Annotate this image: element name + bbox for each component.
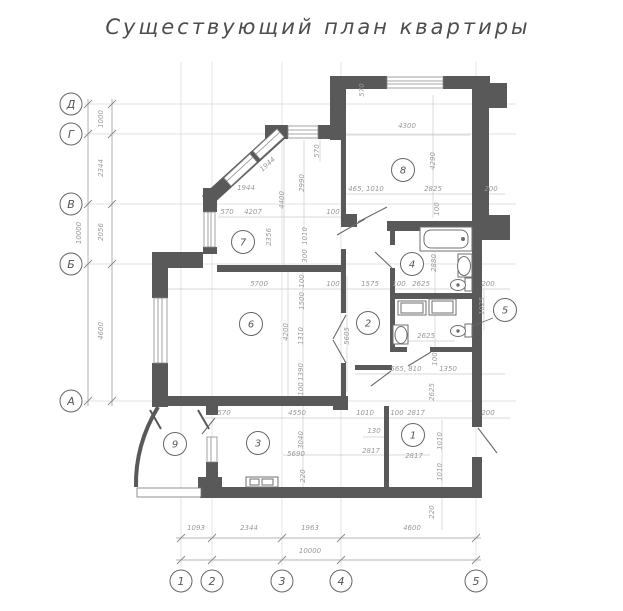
dimension-label: 100 — [431, 352, 439, 366]
door-wc — [408, 352, 431, 366]
dimension-label: 220 — [299, 469, 307, 483]
dimension-label: 1390 — [297, 363, 305, 381]
dimension-label: 1944 — [237, 184, 255, 192]
dimension-label: 2625 — [417, 332, 435, 340]
dimension-label: 1010 — [356, 409, 374, 417]
dimension-label: 4200 — [282, 323, 290, 341]
axis-dimension-label: 1963 — [301, 524, 319, 532]
axis-label-1: 1 — [178, 575, 185, 588]
axis-dimension-label: 1093 — [187, 524, 205, 532]
window-top-corridor — [288, 126, 318, 138]
axis-label-Д: Д — [66, 98, 76, 111]
dimension-label: 100 — [433, 202, 441, 216]
door-room8 — [358, 207, 387, 222]
dimension-label: 100 — [390, 409, 404, 417]
axis-dimension-label: 220 — [428, 505, 436, 519]
dimension-label: 4207 — [244, 208, 262, 216]
axis-label-Г: Г — [68, 128, 75, 141]
dimension-label: 570 — [313, 144, 321, 158]
axis-dimension-label: 1000 — [97, 110, 105, 128]
dimension-label: 4290 — [429, 152, 437, 170]
dimension-label: 2990 — [298, 174, 306, 192]
window-balcony-wall — [207, 437, 217, 462]
window-room6-left — [154, 298, 167, 363]
dimension-label: 465, 1010 — [348, 185, 384, 193]
axis-label-В: В — [67, 198, 75, 211]
axis-dimension-label: 4600 — [403, 524, 421, 532]
dimension-label: 2817 — [362, 447, 380, 455]
dimension-label: 200 — [481, 280, 495, 288]
cabinet-wc-2 — [429, 299, 456, 315]
dimension-label: 5690 — [287, 450, 305, 458]
dimension-label: 4400 — [278, 191, 286, 209]
room-number-1: 1 — [410, 431, 416, 442]
axis-markers: ДГВБА12345 — [60, 93, 487, 592]
door-passage — [371, 371, 391, 386]
room-number-4: 4 — [409, 260, 415, 271]
kitchen-stove — [246, 477, 278, 487]
dimension-label: 3040 — [297, 431, 305, 449]
sink-wc — [393, 325, 408, 344]
axis-dimension-label: 10000 — [299, 547, 322, 555]
dimension-label: 1025 — [478, 297, 486, 315]
dimension-label: 300 — [301, 249, 309, 263]
room-number-2: 2 — [365, 319, 371, 330]
dimension-label: 2817 — [405, 452, 423, 460]
door-bathroom — [375, 252, 392, 268]
dimension-label: 2825 — [424, 185, 442, 193]
dimension-label: 100 — [326, 208, 340, 216]
axis-label-А: А — [66, 395, 75, 408]
dimension-label: 200 — [484, 185, 498, 193]
cabinet-wc-1 — [398, 301, 426, 315]
dimension-label: 570 — [358, 83, 366, 97]
dimension-label: 130 — [367, 427, 381, 435]
dimension-label: 4550 — [288, 409, 306, 417]
axis-dimension-label: 10000 — [75, 221, 83, 244]
balcony-parapet — [137, 488, 201, 497]
dimension-label: 5605 — [343, 327, 351, 345]
dimension-label: 100 — [392, 280, 406, 288]
room-number-9: 9 — [172, 440, 178, 451]
floor-plan-page: 1944194457042074400299057057043004290465… — [0, 0, 623, 611]
dimension-label: 1500 — [298, 292, 306, 310]
toilet-bathroom — [451, 278, 473, 291]
dimension-label: 100 — [298, 274, 306, 288]
dimension-label: 1010 — [436, 463, 444, 481]
axis-label-5: 5 — [473, 575, 480, 588]
dimension-label: 570 — [217, 409, 231, 417]
dimension-label: 5700 — [250, 280, 268, 288]
dimension-label: 4300 — [398, 122, 416, 130]
dimension-label: 1010 — [301, 227, 309, 245]
dimension-label: 2356 — [265, 228, 273, 246]
room-number-7: 7 — [240, 238, 247, 249]
dimension-label: 1350 — [439, 365, 457, 373]
dimension-label: 1575 — [361, 280, 379, 288]
floor-plan-drawing: 1944194457042074400299057057043004290465… — [0, 0, 623, 611]
dimension-label: 2625 — [412, 280, 430, 288]
dimension-label: 200 — [481, 409, 495, 417]
sink-bathroom — [458, 254, 473, 277]
dimension-label: 1010 — [436, 432, 444, 450]
axis-dimension-label: 2056 — [97, 223, 105, 241]
dimension-label: 570 — [220, 208, 234, 216]
toilet-wc — [451, 324, 473, 337]
room-number-8: 8 — [400, 166, 406, 177]
axis-label-4: 4 — [338, 575, 345, 588]
dimension-lines — [168, 95, 510, 530]
dimension-label: 2817 — [407, 409, 425, 417]
door-entrance — [478, 428, 497, 453]
window-room8-top — [387, 77, 443, 88]
window-room7-left — [204, 212, 215, 247]
axis-label-2: 2 — [209, 575, 216, 588]
room-number-6: 6 — [248, 320, 254, 331]
dimension-label: 1310 — [297, 327, 305, 345]
dimension-label: 2625 — [428, 383, 436, 401]
dimension-label: 2880 — [430, 254, 438, 272]
drawing-title: Существующий план квартиры — [105, 15, 530, 39]
axis-label-3: 3 — [279, 575, 286, 588]
bathtub — [420, 227, 472, 251]
window-diagonal-1 — [224, 154, 257, 186]
room-number-3: 3 — [255, 439, 261, 450]
axis-label-Б: Б — [67, 258, 75, 271]
axis-dimension-label: 4600 — [97, 322, 105, 340]
dimension-label: 100 — [326, 280, 340, 288]
dimension-label: 100 — [297, 382, 305, 396]
axis-dimension-label: 2344 — [97, 159, 105, 177]
dimension-label: 565, 810 — [390, 365, 422, 373]
room-number-5: 5 — [502, 306, 508, 317]
axis-dimension-label: 2344 — [240, 524, 258, 532]
